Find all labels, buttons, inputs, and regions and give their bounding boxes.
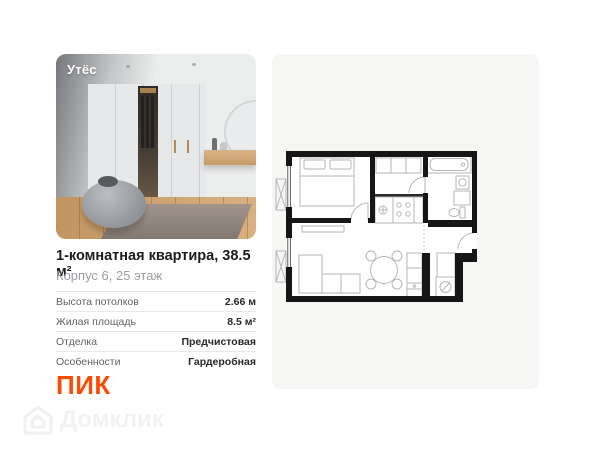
spec-value: Гардеробная [188, 356, 256, 368]
bathroom-cabinet [454, 191, 470, 205]
ceiling-spotlight [126, 65, 130, 68]
watermark-text: Домклик [60, 406, 164, 434]
ac-basket-top [276, 179, 286, 210]
pik-developer-logo: ПИК [56, 370, 111, 401]
listing-subtitle: Корпус 6, 25 этаж [56, 268, 266, 283]
open-closet-section [138, 86, 158, 202]
vase [212, 138, 217, 150]
wall-step [455, 253, 477, 262]
wall-bottom [286, 296, 463, 302]
spec-value: Предчистовая [181, 336, 256, 348]
kitchen-cabinets [407, 253, 422, 297]
ac-basket-bottom [276, 251, 286, 282]
wall-bathroom-left [423, 157, 428, 177]
specs-table: Высота потолков 2.66 м Жилая площадь 8.5… [56, 291, 256, 371]
wooden-shelf [204, 150, 256, 165]
floor-plan-drawing [272, 145, 482, 307]
spec-row-finishing: Отделка Предчистовая [56, 331, 256, 351]
bathtub [427, 156, 471, 173]
spec-label: Жилая площадь [56, 316, 136, 328]
dining-table [366, 251, 402, 289]
spec-label: Высота потолков [56, 296, 139, 308]
kitchen-sink-icon [379, 206, 387, 214]
pouf-cushion [98, 176, 118, 187]
wardrobe-handle [174, 140, 176, 153]
spec-label: Особенности [56, 356, 120, 368]
spec-row-ceiling-height: Высота потолков 2.66 м [56, 291, 256, 311]
domclick-house-icon [22, 404, 54, 436]
spec-value: 8.5 м² [227, 316, 256, 328]
domclick-watermark: Домклик [22, 404, 164, 436]
wall-closet [375, 194, 423, 197]
utility-counter [437, 253, 455, 277]
listing-card: Утёс 1-комнатная квартира, 38.5 м² Корпу… [0, 0, 600, 450]
project-name-badge: Утёс [67, 62, 97, 77]
wall-bathroom-bottom [428, 220, 477, 227]
spec-label: Отделка [56, 336, 97, 348]
bathroom-sink [456, 176, 469, 189]
wardrobe-handle [187, 140, 189, 153]
wardrobe-closet [376, 158, 421, 173]
bed [300, 158, 354, 206]
wall-top [286, 151, 477, 157]
spec-row-living-area: Жилая площадь 8.5 м² [56, 311, 256, 331]
pouf [82, 180, 146, 228]
vase [220, 142, 227, 150]
wall-bedroom-right [370, 157, 375, 223]
apartment-photo[interactable]: Утёс [56, 54, 256, 239]
tv-console [302, 226, 344, 232]
ceiling-spotlight [192, 63, 196, 66]
spec-row-features: Особенности Гардеробная [56, 351, 256, 371]
washing-machine [436, 277, 455, 297]
wall-utility [422, 253, 430, 301]
floor-plan-panel[interactable] [272, 54, 539, 389]
wall-left [286, 151, 292, 166]
spec-value: 2.66 м [225, 296, 256, 308]
wall-bedroom-bottom [292, 218, 351, 223]
